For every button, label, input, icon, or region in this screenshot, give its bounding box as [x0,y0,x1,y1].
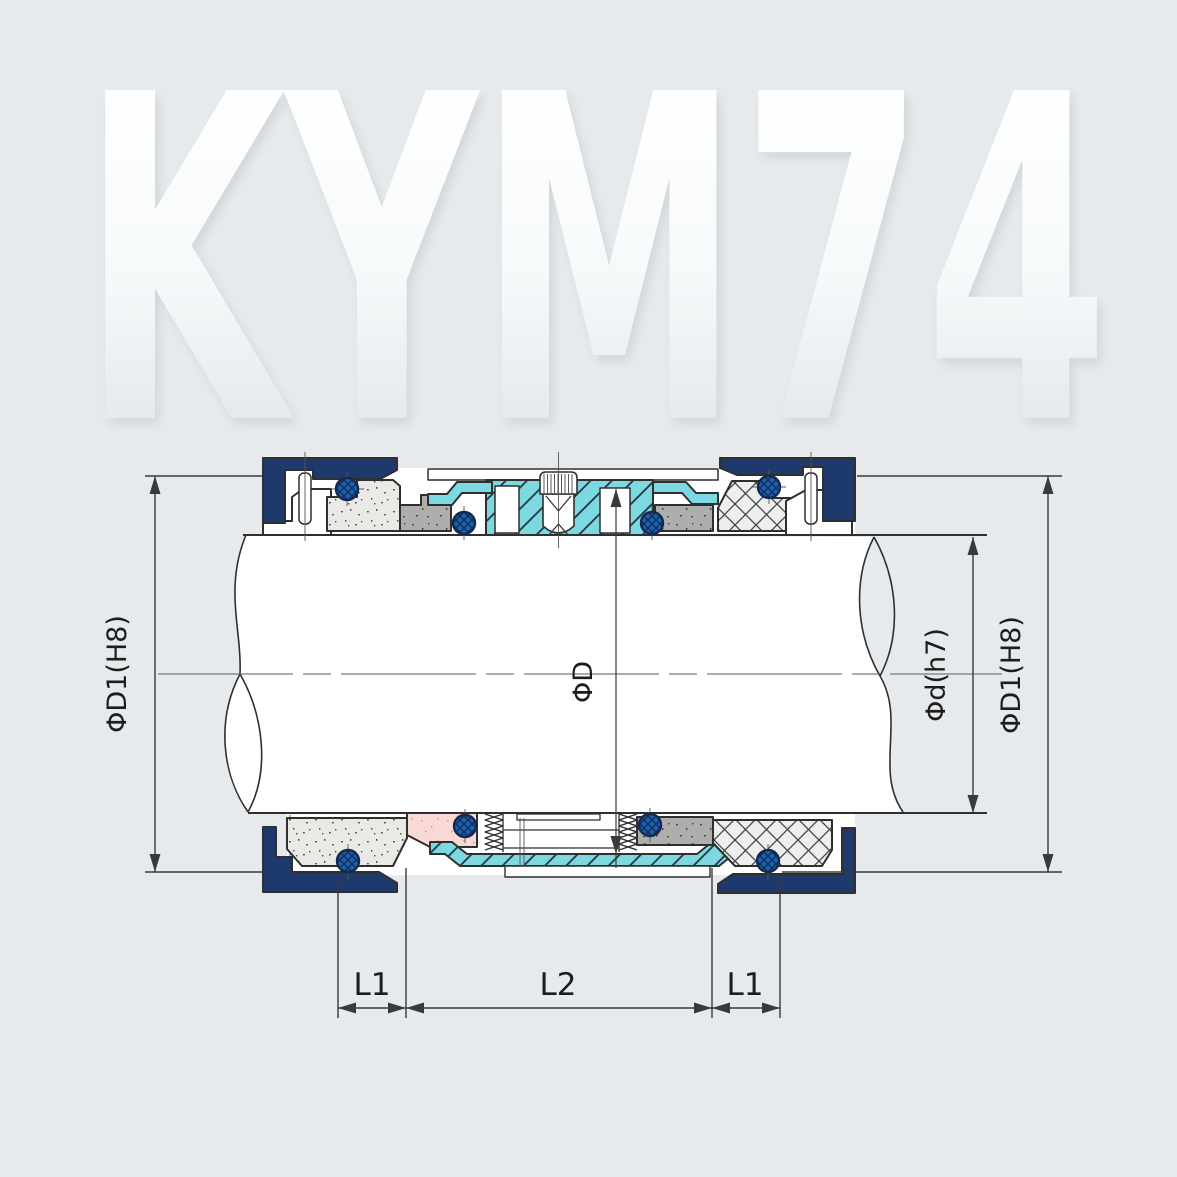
oring-bottom-inner-right [639,814,661,836]
label-d1-left: ΦD1(H8) [102,615,133,733]
oring-top-inner-left [453,512,475,534]
slot-top-left [495,486,519,533]
oring-bottom-right [757,850,779,872]
watermark: KYM74 [81,1,1109,525]
oring-bottom-left [337,850,359,872]
seal-diagram: KYM74 [0,0,1177,1177]
retainer-band-bottom [505,866,710,877]
label-l2: L2 [540,967,577,1003]
label-l1-right: L1 [727,967,764,1003]
label-l1-left: L1 [354,967,391,1003]
watermark-text: KYM74 [81,1,1109,525]
oring-top-left [336,478,358,500]
label-d-center: ΦD [568,661,599,703]
oring-top-right [758,476,780,498]
label-d1-right: ΦD1(H8) [996,616,1027,734]
spacer-top-right [655,505,713,531]
oring-bottom-inner-left [454,815,476,837]
oring-top-inner-right [641,512,663,534]
label-d-shaft: Φd(h7) [921,628,952,722]
screenshot-root: KYM74 [0,0,1177,1177]
